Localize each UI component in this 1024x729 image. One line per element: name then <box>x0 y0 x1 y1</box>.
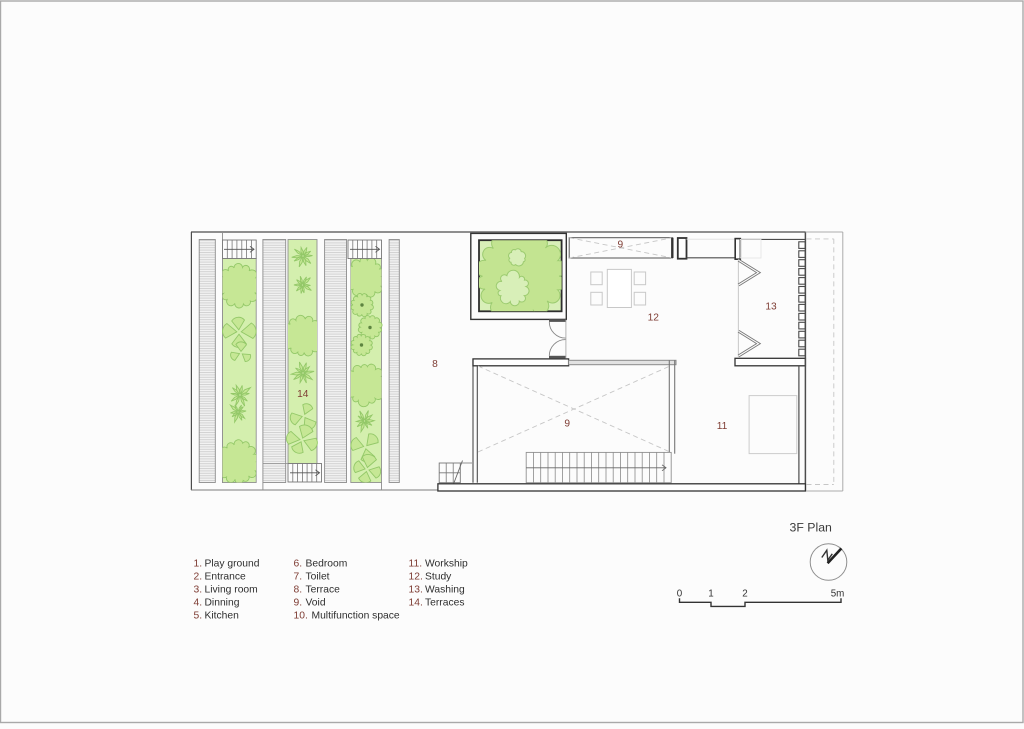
svg-text:2.: 2. <box>194 572 203 583</box>
svg-text:14: 14 <box>297 389 309 400</box>
svg-text:12.: 12. <box>409 572 423 583</box>
svg-text:11.: 11. <box>409 559 423 570</box>
svg-text:6.: 6. <box>294 559 303 570</box>
svg-text:5.: 5. <box>194 611 203 622</box>
svg-text:Workship: Workship <box>425 559 468 570</box>
svg-text:4.: 4. <box>194 598 203 609</box>
svg-text:5m: 5m <box>831 588 845 599</box>
svg-text:1.: 1. <box>194 559 203 570</box>
svg-text:Dinning: Dinning <box>205 598 240 609</box>
svg-text:13: 13 <box>765 302 777 313</box>
svg-text:12: 12 <box>648 313 660 324</box>
svg-text:8: 8 <box>432 359 438 370</box>
svg-text:Study: Study <box>425 572 452 583</box>
svg-text:Void: Void <box>306 598 326 609</box>
svg-text:3F Plan: 3F Plan <box>790 521 833 535</box>
svg-text:1: 1 <box>708 588 713 599</box>
svg-text:2: 2 <box>742 588 747 599</box>
svg-text:Toilet: Toilet <box>306 572 330 583</box>
svg-text:Living room: Living room <box>205 585 258 596</box>
svg-text:9: 9 <box>564 419 570 430</box>
svg-text:Terraces: Terraces <box>425 598 464 609</box>
svg-text:14.: 14. <box>409 598 423 609</box>
svg-text:13.: 13. <box>409 585 423 596</box>
svg-text:8.: 8. <box>294 585 303 596</box>
svg-text:9.: 9. <box>294 598 303 609</box>
svg-text:7.: 7. <box>294 572 303 583</box>
svg-text:0: 0 <box>677 588 683 599</box>
svg-text:Kitchen: Kitchen <box>205 611 240 622</box>
svg-text:10.: 10. <box>294 611 308 622</box>
svg-text:Washing: Washing <box>425 585 465 596</box>
svg-text:Terrace: Terrace <box>306 585 341 596</box>
svg-text:Bedroom: Bedroom <box>306 559 348 570</box>
svg-text:9: 9 <box>617 240 623 251</box>
svg-text:Multifunction space: Multifunction space <box>312 611 400 622</box>
svg-text:Entrance: Entrance <box>205 572 246 583</box>
svg-text:11: 11 <box>717 421 728 432</box>
svg-text:Play ground: Play ground <box>205 559 260 570</box>
svg-text:3.: 3. <box>194 585 203 596</box>
